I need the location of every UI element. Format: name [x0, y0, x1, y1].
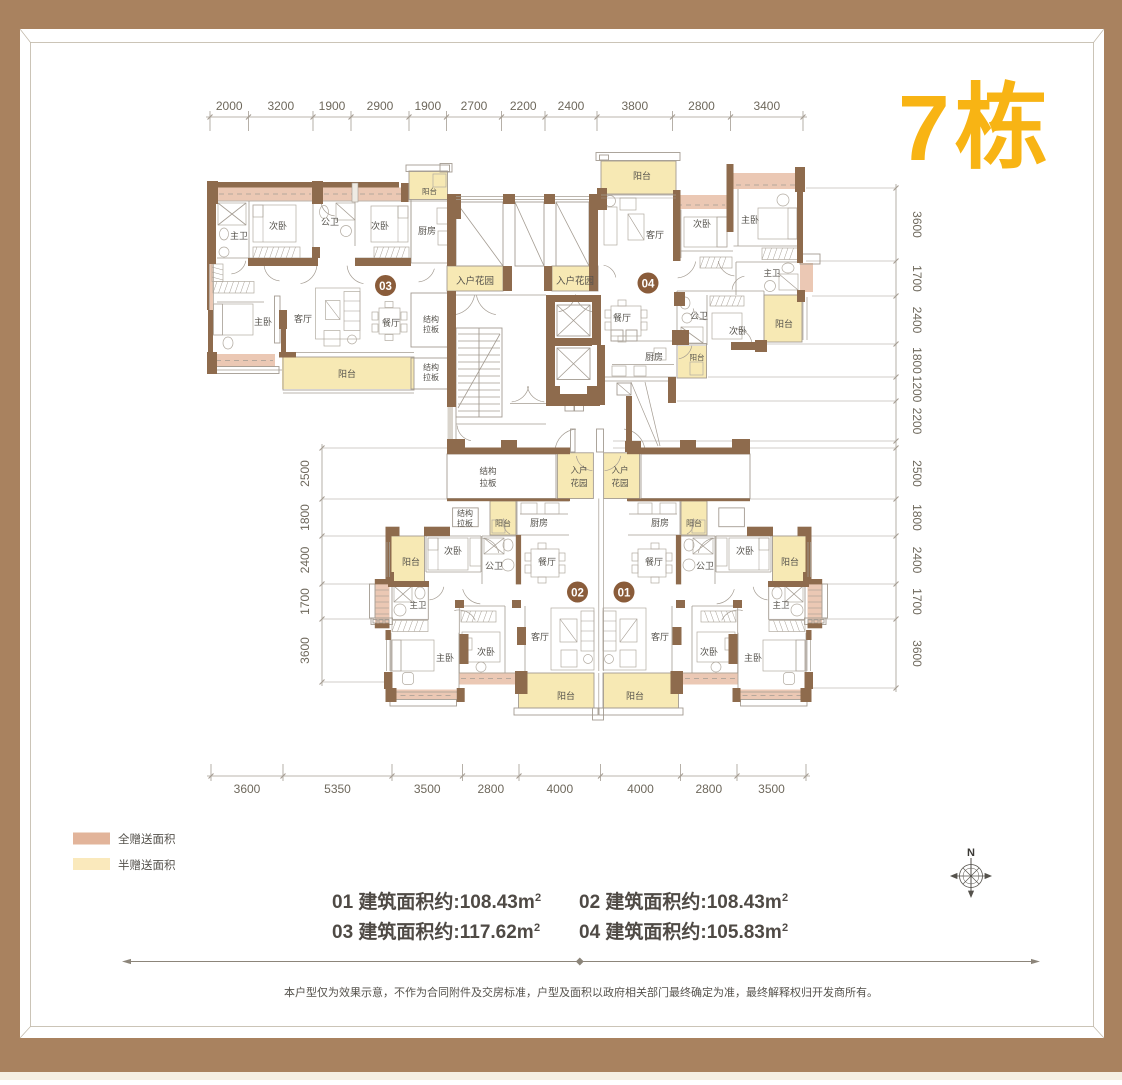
svg-text:公卫: 公卫	[696, 561, 714, 571]
svg-text:阳台: 阳台	[338, 368, 356, 379]
svg-text:3200: 3200	[267, 99, 294, 113]
svg-text:2800: 2800	[477, 782, 504, 796]
svg-text:餐厅: 餐厅	[538, 556, 556, 567]
svg-text:客厅: 客厅	[294, 313, 312, 324]
svg-text:1200: 1200	[910, 376, 924, 403]
svg-text:3600: 3600	[910, 640, 924, 667]
svg-text:阳台: 阳台	[422, 186, 437, 196]
svg-text:02: 02	[571, 588, 584, 600]
svg-text:次卧: 次卧	[736, 545, 754, 556]
svg-text:2400: 2400	[910, 547, 924, 574]
svg-text:餐厅: 餐厅	[382, 317, 400, 328]
svg-text:1800: 1800	[910, 347, 924, 374]
svg-text:阳台: 阳台	[557, 690, 575, 701]
svg-text:阳台: 阳台	[626, 690, 644, 701]
svg-text:客厅: 客厅	[651, 631, 669, 642]
svg-text:1700: 1700	[298, 588, 312, 615]
svg-text:01 建筑面积约:108.43m: 01 建筑面积约:108.43m	[332, 890, 535, 913]
svg-text:04 建筑面积约:105.83m: 04 建筑面积约:105.83m	[579, 920, 782, 943]
svg-text:2500: 2500	[298, 460, 312, 487]
svg-text:次卧: 次卧	[444, 545, 462, 556]
svg-text:2: 2	[782, 922, 788, 934]
svg-text:结构: 结构	[423, 314, 439, 324]
svg-text:结构: 结构	[457, 508, 473, 518]
svg-text:公卫: 公卫	[321, 217, 339, 227]
svg-text:次卧: 次卧	[477, 646, 495, 657]
svg-text:客厅: 客厅	[531, 631, 549, 642]
svg-text:4000: 4000	[627, 782, 654, 796]
svg-text:04: 04	[642, 279, 655, 291]
svg-text:2: 2	[534, 922, 540, 934]
svg-text:5350: 5350	[324, 782, 351, 796]
svg-text:次卧: 次卧	[371, 220, 389, 231]
svg-text:厨房: 厨房	[418, 225, 436, 236]
svg-text:2400: 2400	[298, 546, 312, 573]
svg-text:3400: 3400	[753, 99, 780, 113]
svg-text:阳台: 阳台	[633, 170, 651, 181]
svg-text:厨房: 厨房	[651, 517, 669, 528]
svg-text:2000: 2000	[216, 99, 243, 113]
svg-text:1800: 1800	[298, 504, 312, 531]
svg-text:餐厅: 餐厅	[645, 556, 663, 567]
svg-text:花园: 花园	[570, 478, 587, 488]
svg-text:1700: 1700	[910, 265, 924, 292]
svg-text:入户花园: 入户花园	[556, 275, 594, 287]
svg-text:主卧: 主卧	[436, 652, 454, 663]
svg-text:主卧: 主卧	[741, 214, 759, 225]
svg-text:入户: 入户	[570, 465, 587, 475]
svg-text:4000: 4000	[546, 782, 573, 796]
svg-text:客厅: 客厅	[646, 229, 664, 240]
svg-text:全赠送面积: 全赠送面积	[118, 832, 176, 846]
svg-text:N: N	[967, 847, 975, 859]
svg-text:主卫: 主卫	[772, 600, 790, 610]
svg-text:半赠送面积: 半赠送面积	[118, 858, 176, 872]
svg-text:拉板: 拉板	[423, 372, 439, 382]
svg-text:阳台: 阳台	[775, 318, 793, 329]
svg-text:3600: 3600	[234, 782, 261, 796]
svg-text:结构: 结构	[423, 362, 439, 372]
svg-text:2800: 2800	[688, 99, 715, 113]
svg-text:7栋: 7栋	[898, 76, 1053, 180]
svg-text:本户型仅为效果示意，不作为合同附件及交房标准，户型及面积以政: 本户型仅为效果示意，不作为合同附件及交房标准，户型及面积以政府相关部门最终确定为…	[284, 985, 878, 999]
svg-text:2500: 2500	[910, 460, 924, 487]
svg-text:3800: 3800	[621, 99, 648, 113]
svg-text:主卫: 主卫	[763, 268, 781, 278]
svg-text:1900: 1900	[319, 99, 346, 113]
svg-text:3500: 3500	[414, 782, 441, 796]
svg-text:1900: 1900	[414, 99, 441, 113]
svg-text:02 建筑面积约:108.43m: 02 建筑面积约:108.43m	[579, 890, 782, 913]
svg-text:3600: 3600	[298, 637, 312, 664]
svg-text:主卧: 主卧	[254, 316, 272, 327]
svg-text:01: 01	[618, 588, 631, 600]
svg-text:次卧: 次卧	[700, 646, 718, 657]
svg-text:结构: 结构	[479, 466, 496, 476]
svg-text:2200: 2200	[910, 408, 924, 435]
svg-text:2: 2	[782, 892, 788, 904]
svg-text:3500: 3500	[758, 782, 785, 796]
svg-text:03: 03	[379, 281, 392, 293]
svg-text:次卧: 次卧	[729, 325, 747, 336]
svg-text:主卫: 主卫	[409, 600, 427, 610]
svg-text:2800: 2800	[695, 782, 722, 796]
svg-text:次卧: 次卧	[269, 220, 287, 231]
svg-text:2900: 2900	[367, 99, 394, 113]
svg-text:1800: 1800	[910, 504, 924, 531]
svg-text:1700: 1700	[910, 588, 924, 615]
svg-text:2: 2	[535, 892, 541, 904]
svg-text:入户花园: 入户花园	[456, 275, 494, 287]
svg-text:厨房: 厨房	[645, 351, 663, 362]
svg-text:公卫: 公卫	[485, 561, 503, 571]
svg-text:阳台: 阳台	[686, 518, 702, 528]
svg-text:2700: 2700	[461, 99, 488, 113]
svg-text:阳台: 阳台	[690, 352, 705, 362]
svg-text:阳台: 阳台	[402, 556, 420, 567]
svg-text:厨房: 厨房	[530, 517, 548, 528]
svg-text:餐厅: 餐厅	[613, 312, 631, 323]
svg-text:阳台: 阳台	[781, 556, 799, 567]
svg-text:拉板: 拉板	[423, 324, 439, 334]
svg-text:主卧: 主卧	[744, 652, 762, 663]
svg-text:2400: 2400	[558, 99, 585, 113]
svg-text:2200: 2200	[510, 99, 537, 113]
svg-text:主卫: 主卫	[230, 230, 248, 241]
svg-text:03 建筑面积约:117.62m: 03 建筑面积约:117.62m	[332, 920, 534, 943]
svg-text:花园: 花园	[611, 478, 628, 488]
svg-text:3600: 3600	[910, 211, 924, 238]
svg-text:阳台: 阳台	[495, 518, 511, 528]
svg-text:2400: 2400	[910, 307, 924, 334]
svg-text:入户: 入户	[611, 465, 628, 475]
svg-text:次卧: 次卧	[693, 218, 711, 229]
svg-text:拉板: 拉板	[479, 478, 497, 488]
svg-text:拉板: 拉板	[457, 518, 473, 528]
svg-text:公卫: 公卫	[690, 311, 708, 321]
